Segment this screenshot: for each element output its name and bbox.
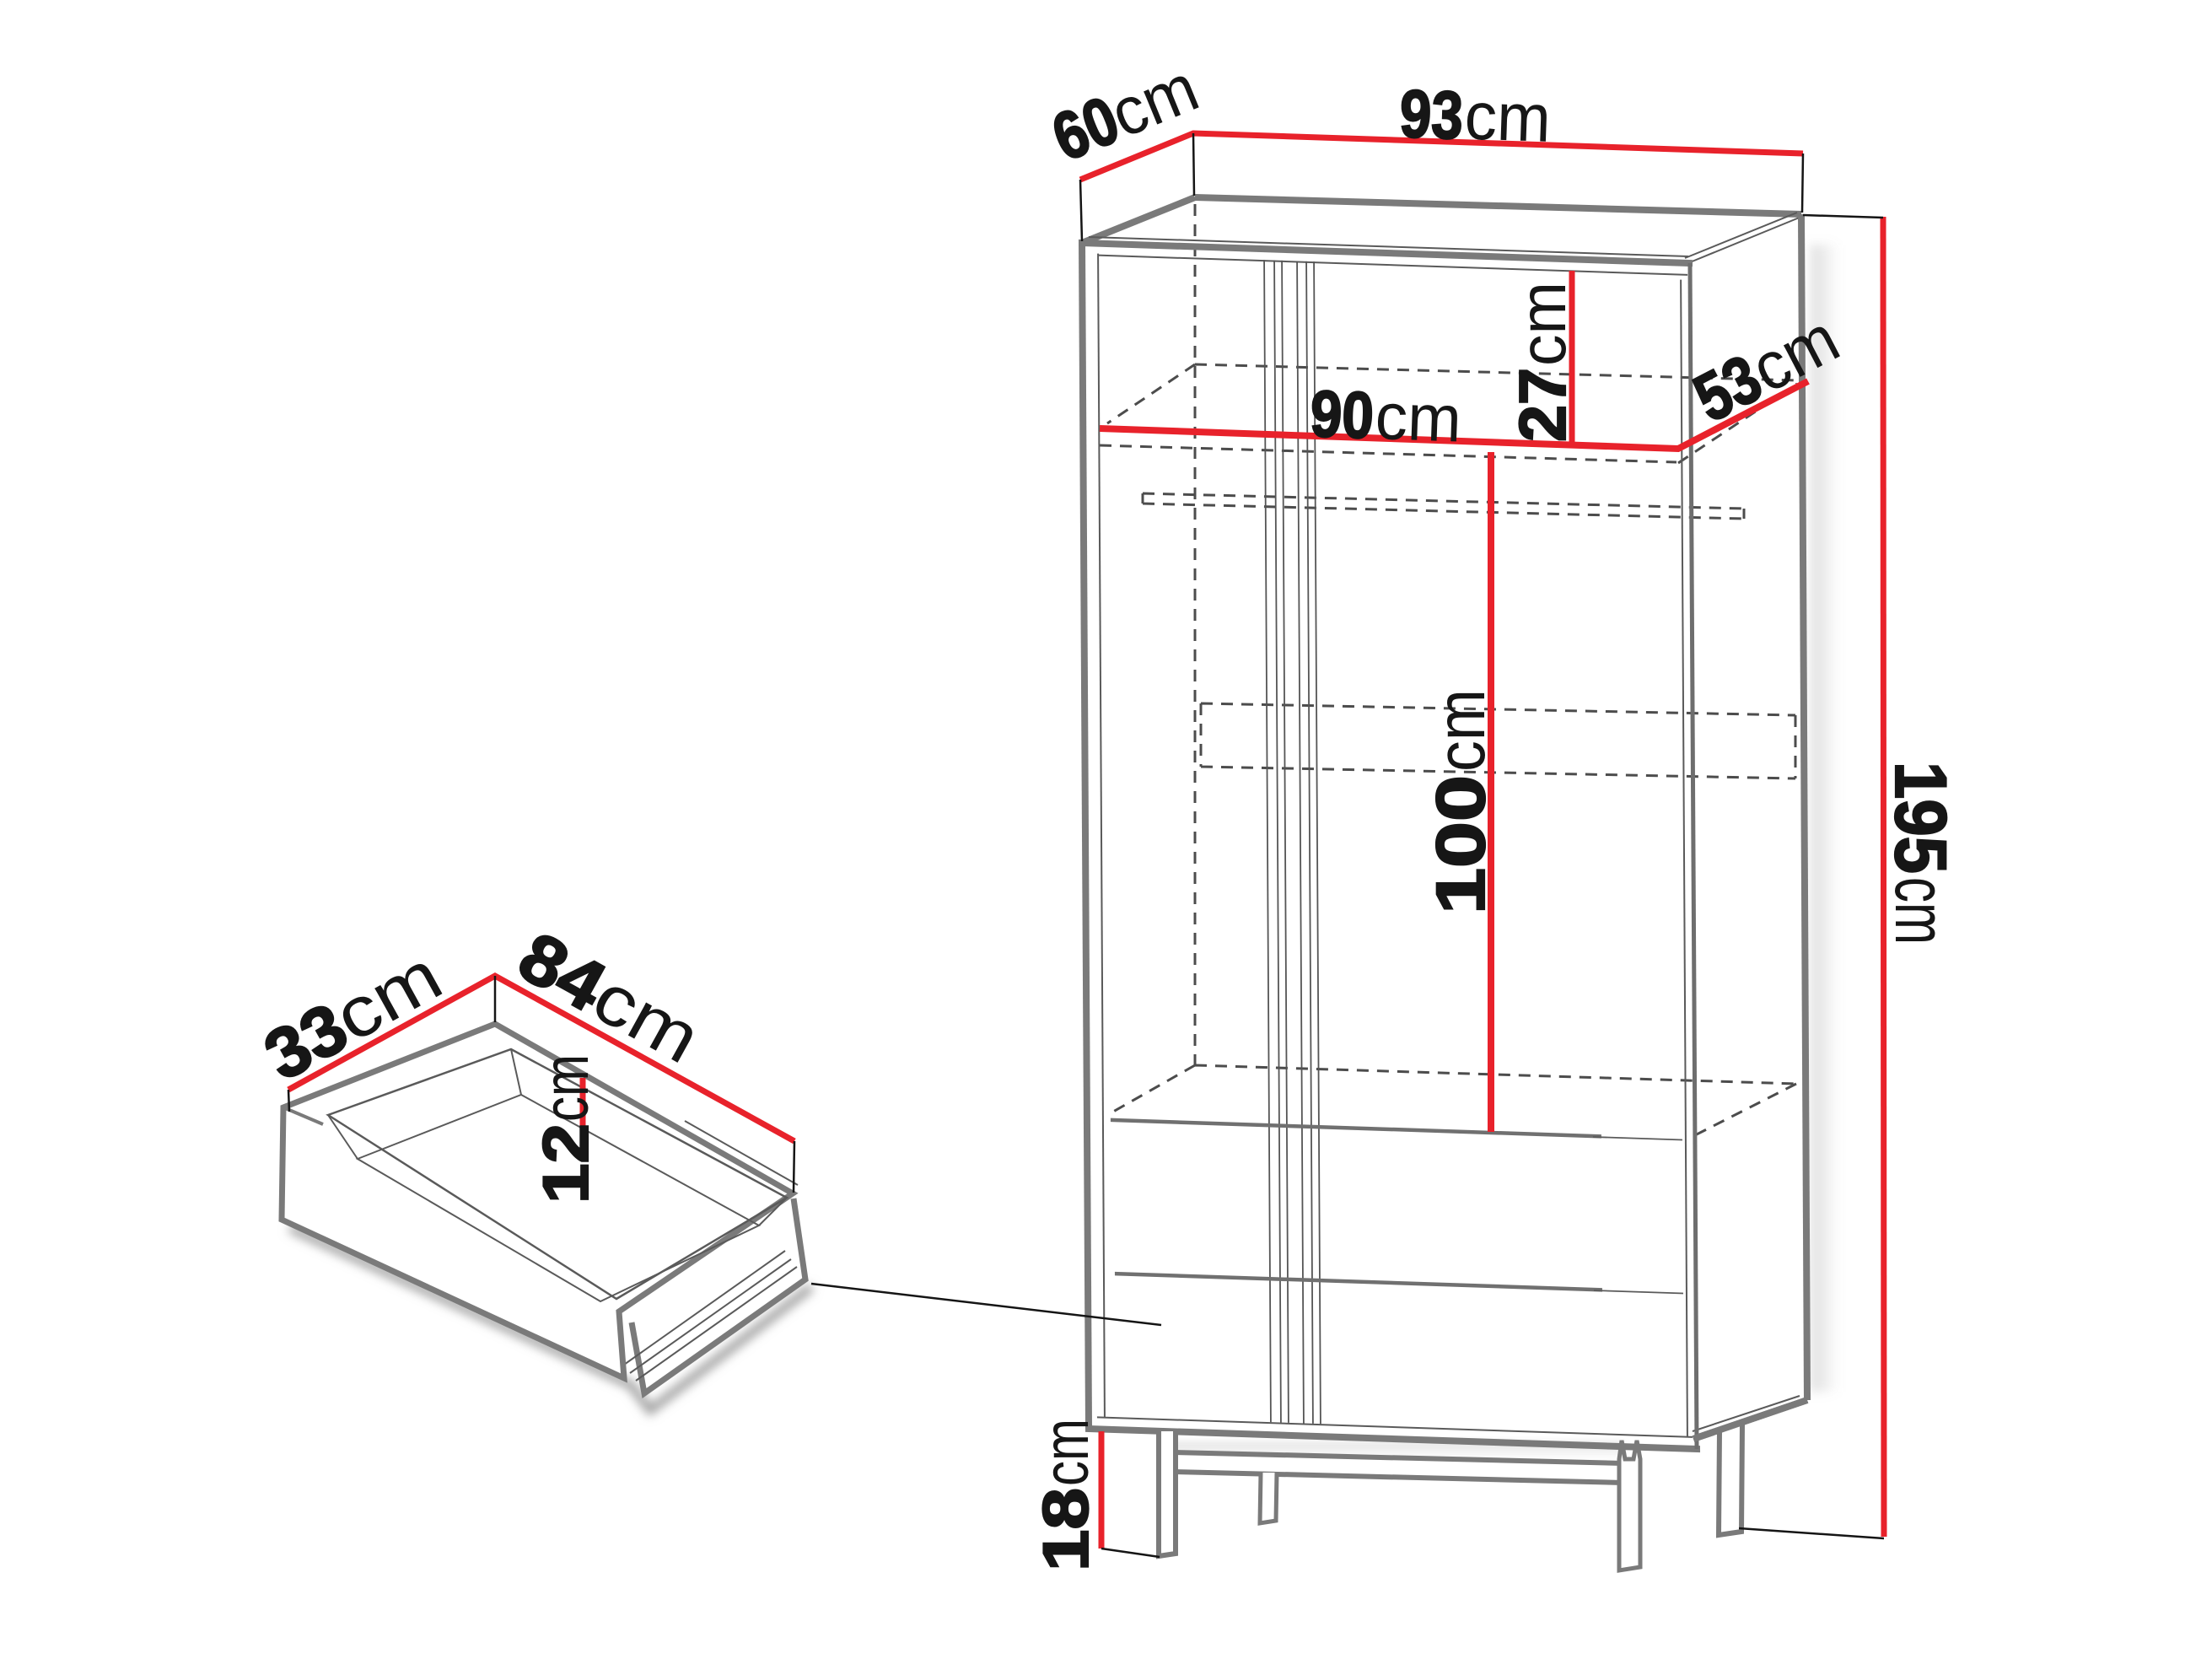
svg-text:18: 18 — [1031, 1488, 1102, 1571]
svg-text:12: 12 — [530, 1123, 602, 1204]
svg-text:cm: cm — [530, 1054, 602, 1122]
svg-text:93: 93 — [1398, 76, 1464, 153]
svg-text:90: 90 — [1309, 376, 1375, 453]
svg-text:cm: cm — [1463, 78, 1552, 156]
svg-text:27: 27 — [1505, 368, 1580, 442]
svg-text:cm: cm — [1880, 877, 1961, 945]
svg-text:cm: cm — [1031, 1419, 1102, 1486]
svg-text:cm: cm — [1374, 379, 1462, 456]
svg-text:cm: cm — [1423, 689, 1499, 772]
svg-text:195: 195 — [1880, 762, 1961, 874]
svg-text:cm: cm — [1505, 282, 1580, 366]
svg-text:100: 100 — [1423, 775, 1499, 914]
